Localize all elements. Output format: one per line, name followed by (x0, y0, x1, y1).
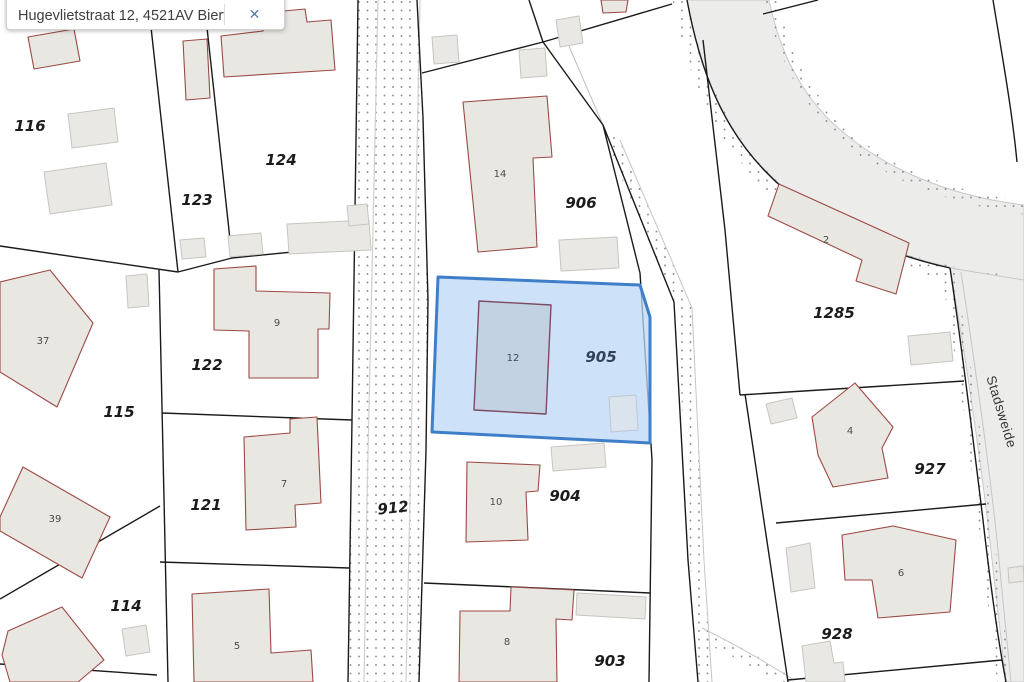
building-label-6: 6 (898, 568, 904, 579)
parcel-label-928: 928 (821, 625, 852, 643)
shed (228, 233, 263, 257)
shed (908, 332, 953, 365)
parcel-label-1285: 1285 (813, 304, 855, 322)
shed (180, 238, 206, 259)
map-canvas[interactable]: 116 123 124 122 115 121 114 912 906 905 … (0, 0, 1024, 682)
shed (551, 443, 606, 471)
building-label-37: 37 (37, 336, 50, 347)
parcel-label-116: 116 (14, 117, 45, 135)
shed (44, 163, 112, 214)
building (183, 39, 210, 100)
shed (122, 625, 150, 656)
shed (559, 237, 619, 271)
parcel-label-114: 114 (110, 597, 141, 615)
search-input[interactable]: Hugevlietstraat 12, 4521AV Biervliet (7, 0, 224, 29)
parcel-label-121: 121 (190, 496, 221, 514)
parcel-label-927: 927 (914, 460, 946, 478)
parcel-label-906: 906 (565, 194, 596, 212)
shed (786, 543, 815, 592)
building-label-14: 14 (494, 169, 507, 180)
parcel-label-905: 905 (585, 348, 616, 366)
shed (347, 204, 369, 226)
building-label-2: 2 (823, 235, 829, 246)
building (601, 0, 628, 13)
parcel-label-115: 115 (103, 403, 134, 421)
parcel-label-903: 903 (594, 652, 625, 670)
search-box[interactable]: Hugevlietstraat 12, 4521AV Biervliet ✕ (6, 0, 285, 30)
shed (556, 16, 583, 47)
building-label-12: 12 (507, 353, 520, 364)
shed (576, 593, 646, 619)
road-912-surface (348, 0, 428, 682)
building-label-9: 9 (274, 318, 280, 329)
parcel-label-904: 904 (549, 487, 580, 505)
shed (519, 48, 547, 78)
cadastral-map-viewer: 116 123 124 122 115 121 114 912 906 905 … (0, 0, 1024, 682)
shed (432, 35, 459, 64)
shed (68, 108, 118, 148)
building-label-8: 8 (504, 637, 510, 648)
building-label-5: 5 (234, 641, 240, 652)
parcel-label-124: 124 (265, 151, 296, 169)
selected-parcel-outbuilding (609, 395, 638, 432)
shed (1008, 566, 1024, 583)
shed (126, 274, 149, 308)
building-label-4: 4 (847, 426, 853, 437)
parcel-label-912: 912 (376, 497, 409, 518)
building-label-7: 7 (281, 479, 287, 490)
building-label-39: 39 (49, 514, 62, 525)
parcel-label-123: 123 (181, 191, 212, 209)
parcel-label-122: 122 (191, 356, 222, 374)
building-label-10: 10 (490, 497, 503, 508)
close-icon[interactable]: ✕ (225, 0, 284, 29)
